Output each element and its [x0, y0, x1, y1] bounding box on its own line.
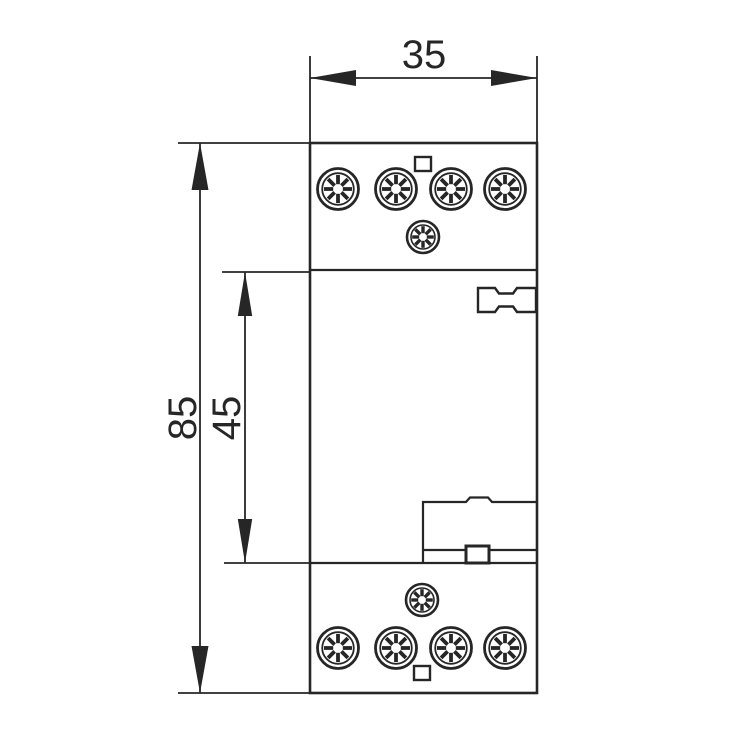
terminal-screw-icon [376, 628, 417, 669]
bottom-terminal-block [318, 584, 526, 680]
terminal-screw-icon [318, 628, 359, 669]
panel-indicator-square [466, 546, 489, 563]
dimension-arrow-down-icon [238, 519, 252, 563]
overall-height-dimension-label: 85 [161, 396, 205, 441]
terminal-marker-square [414, 666, 430, 680]
clip-tab-shape [478, 288, 536, 312]
dimension-arrow-down-icon [192, 646, 209, 693]
dimension-arrow-up-icon [192, 143, 209, 190]
auxiliary-screw-icon [407, 221, 439, 253]
body-height-dimension-label: 45 [205, 396, 249, 441]
contactor-dimension-diagram: 35 85 45 [0, 0, 750, 750]
dimension-arrow-left-icon [310, 70, 356, 86]
technical-drawing-canvas: 35 85 45 [0, 0, 750, 750]
dimension-arrow-right-icon [491, 70, 537, 86]
auxiliary-screw-icon [406, 584, 438, 616]
side-clip-tab [478, 288, 536, 312]
top-terminal-block [318, 157, 526, 253]
terminal-screw-icon [376, 169, 417, 210]
terminal-screw-icon [431, 628, 472, 669]
terminal-screw-icon [485, 628, 526, 669]
lower-front-panel [423, 498, 537, 564]
width-dimension: 35 [310, 33, 537, 143]
terminal-screw-icon [318, 169, 359, 210]
dimension-arrow-up-icon [238, 272, 252, 316]
terminal-marker-square [415, 157, 431, 171]
terminal-screw-icon [485, 169, 526, 210]
width-dimension-label: 35 [402, 33, 447, 77]
body-height-dimension: 45 [205, 272, 310, 563]
terminal-screw-icon [431, 169, 472, 210]
